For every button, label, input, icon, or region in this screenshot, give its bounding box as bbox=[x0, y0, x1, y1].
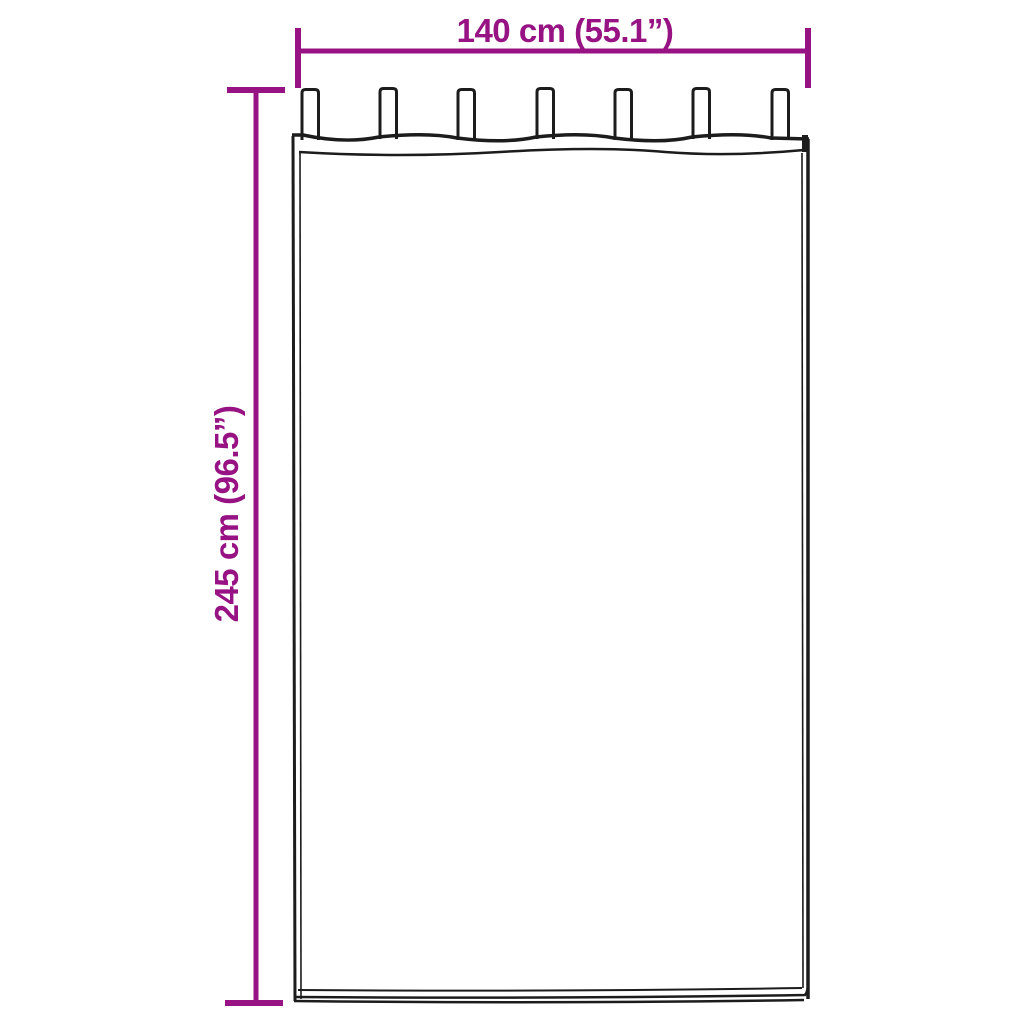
height-dimension-label: 245 cm (96.5”) bbox=[208, 406, 245, 623]
curtain-dimension-diagram: 140 cm (55.1”) 245 cm (96.5”) bbox=[0, 0, 1024, 1024]
width-dimension-label: 140 cm (55.1”) bbox=[457, 12, 674, 49]
curtain-tabs bbox=[302, 89, 789, 141]
curtain-hem-line-upper bbox=[298, 988, 802, 991]
curtain-right-edge-inner bbox=[802, 153, 803, 988]
curtain-left-edge bbox=[293, 136, 295, 1001]
curtain-tab bbox=[380, 89, 397, 140]
curtain-tab bbox=[615, 90, 632, 141]
curtain-header-band-line bbox=[299, 149, 804, 155]
diagram-canvas: 140 cm (55.1”) 245 cm (96.5”) bbox=[0, 0, 1024, 1024]
curtain-illustration bbox=[292, 89, 809, 1003]
curtain-bottom-edge bbox=[294, 1000, 804, 1002]
curtain-left-edge-inner bbox=[300, 153, 301, 999]
curtain-tab bbox=[537, 89, 554, 140]
curtain-tab bbox=[302, 90, 319, 141]
curtain-tab bbox=[693, 89, 710, 140]
curtain-top-edge bbox=[292, 135, 809, 141]
curtain-tab bbox=[772, 90, 789, 141]
curtain-tab bbox=[458, 90, 475, 141]
